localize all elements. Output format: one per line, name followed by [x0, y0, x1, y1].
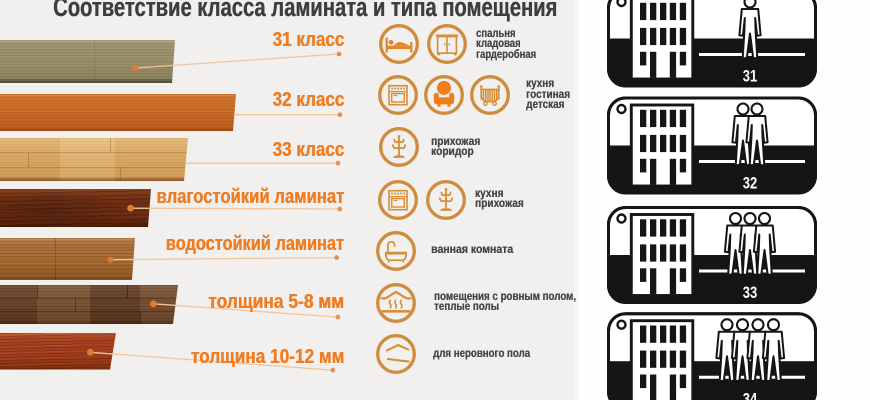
svg-text:34: 34 — [743, 389, 758, 400]
svg-text:32: 32 — [743, 174, 758, 193]
svg-text:31: 31 — [743, 67, 758, 86]
svg-text:33: 33 — [743, 283, 758, 302]
